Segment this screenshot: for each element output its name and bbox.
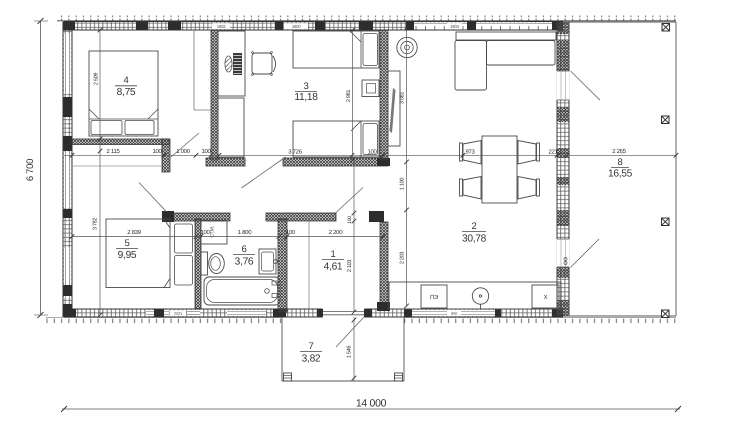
svg-text:100: 100: [367, 149, 377, 156]
svg-text:3 726: 3 726: [288, 149, 302, 156]
svg-text:11,18: 11,18: [294, 92, 318, 103]
svg-text:1 546: 1 546: [347, 346, 353, 359]
svg-text:100: 100: [200, 229, 210, 236]
svg-text:9,95: 9,95: [118, 250, 137, 261]
svg-text:3,82: 3,82: [302, 354, 321, 365]
svg-text:221: 221: [548, 149, 558, 156]
svg-text:6: 6: [242, 244, 247, 255]
svg-text:2 509: 2 509: [94, 73, 100, 86]
svg-text:4,61: 4,61: [324, 262, 343, 273]
svg-text:30,78: 30,78: [462, 234, 487, 245]
svg-text:900: 900: [451, 311, 458, 316]
svg-text:1 100: 1 100: [400, 178, 406, 191]
svg-text:3 782: 3 782: [93, 218, 99, 231]
svg-text:3: 3: [304, 81, 309, 92]
svg-text:100: 100: [347, 216, 353, 224]
svg-text:5: 5: [125, 238, 130, 249]
svg-text:3 081: 3 081: [400, 92, 406, 105]
svg-text:973: 973: [465, 149, 475, 156]
svg-text:2: 2: [472, 221, 477, 232]
svg-text:2 200: 2 200: [329, 229, 343, 236]
svg-text:1 800: 1 800: [238, 229, 252, 236]
svg-text:7: 7: [309, 341, 314, 352]
svg-text:100: 100: [286, 229, 296, 236]
svg-text:3,76: 3,76: [235, 257, 254, 268]
svg-text:16,55: 16,55: [608, 169, 633, 180]
svg-text:2 103: 2 103: [347, 260, 353, 273]
svg-text:2 839: 2 839: [127, 229, 141, 236]
svg-text:1602: 1602: [217, 24, 226, 29]
svg-text:1600: 1600: [292, 24, 301, 29]
svg-text:СТ.М.: СТ.М.: [210, 227, 216, 238]
svg-text:2 203: 2 203: [400, 252, 406, 265]
svg-text:14 000: 14 000: [356, 398, 387, 410]
svg-text:1604: 1604: [450, 24, 459, 29]
svg-text:1: 1: [331, 249, 336, 260]
svg-text:6 700: 6 700: [25, 159, 36, 181]
svg-text:100: 100: [201, 148, 211, 155]
svg-text:4: 4: [124, 75, 129, 86]
svg-text:8: 8: [618, 157, 623, 168]
svg-text:2021: 2021: [174, 311, 183, 316]
svg-text:ПЭ: ПЭ: [430, 294, 439, 301]
svg-text:1 000: 1 000: [176, 148, 190, 155]
svg-text:2 115: 2 115: [106, 148, 120, 155]
svg-text:8,75: 8,75: [117, 87, 136, 98]
svg-text:X: X: [544, 294, 548, 301]
svg-text:2 265: 2 265: [612, 148, 626, 155]
svg-text:100: 100: [152, 148, 162, 155]
svg-text:2 981: 2 981: [346, 90, 352, 103]
